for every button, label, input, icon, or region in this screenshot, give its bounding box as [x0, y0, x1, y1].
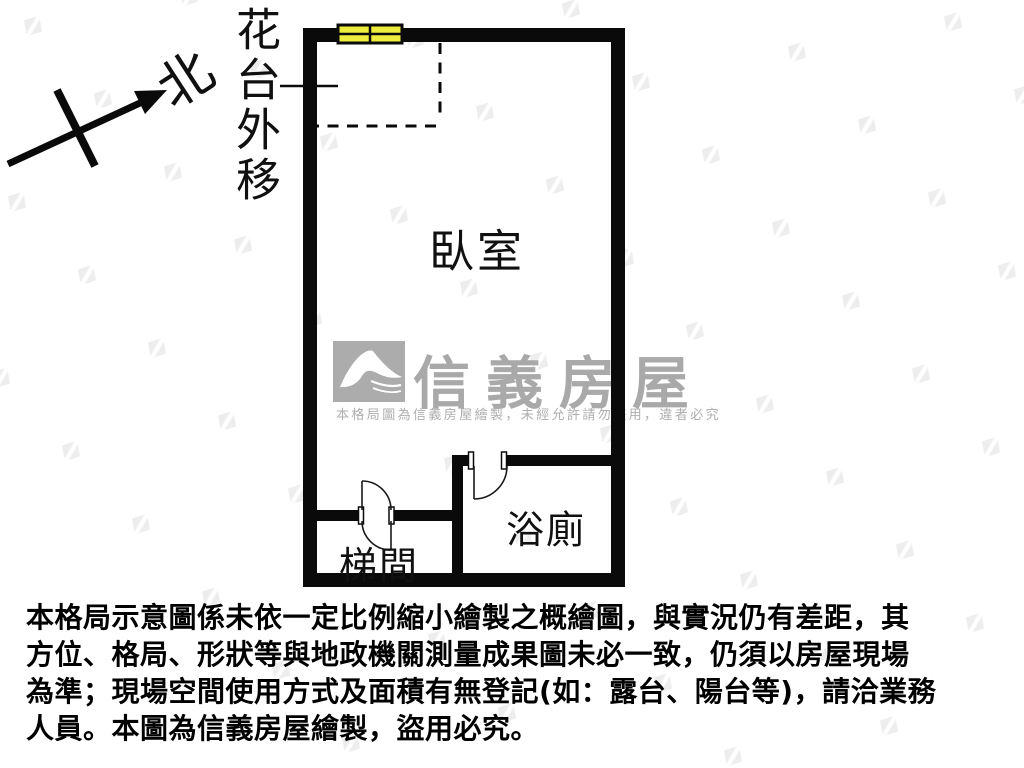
disclaimer-text: 本格局示意圖係未依一定比例縮小繪製之概繪圖，與實況仍有差距，其 方位、格局、形狀… — [26, 599, 1011, 747]
room-label-bedroom: 臥室 — [429, 215, 525, 280]
wall-stairwell-top-right — [394, 510, 463, 521]
flower-terrace-dashed-outline — [308, 43, 441, 126]
disclaimer-line: 本格局示意圖係未依一定比例縮小繪製之概繪圖，與實況仍有差距，其 — [26, 599, 1011, 636]
wall-stairwell-top-left — [303, 510, 359, 521]
room-label-stairwell: 梯間 — [339, 535, 419, 590]
wall-right — [611, 28, 625, 587]
wall-bathroom-top-right — [507, 455, 625, 466]
disclaimer-line: 方位、格局、形狀等與地政機關測量成果圖未必一致，仍須以房屋現場 — [26, 636, 1011, 673]
room-label-bathroom: 浴廁 — [506, 499, 586, 554]
wall-left — [303, 28, 317, 587]
floorplan-page: 信義房屋 本格局圖為信義房屋繪製，未經允許請勿盜用，違者必究 — [0, 0, 1024, 768]
north-arrow-icon — [8, 90, 167, 166]
disclaimer-line: 人員。本圖為信義房屋繪製，盜用必究。 — [26, 710, 1011, 747]
wall-bathroom-top-left — [452, 455, 469, 466]
flower-terrace-annotation: 花台外移 — [231, 6, 277, 206]
disclaimer-line: 為準；現場空間使用方式及面積有無登記(如：露台、陽台等)，請洽業務 — [26, 673, 1011, 710]
window-icon — [338, 25, 402, 43]
bathroom-door-icon — [474, 466, 507, 499]
